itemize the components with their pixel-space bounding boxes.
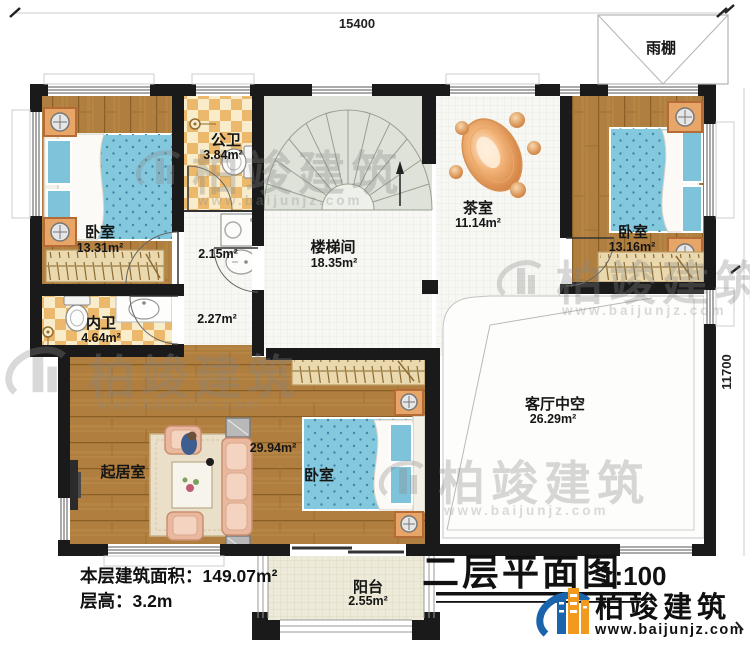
dimension-right: 11700	[719, 88, 744, 556]
tv	[70, 460, 78, 510]
watermark-url: www.baijunjz.com	[561, 303, 727, 318]
room-label: 起居室	[99, 463, 145, 481]
room-area: 4.64m²	[81, 331, 121, 345]
dimension-width: 15400	[339, 16, 375, 31]
nightstand	[395, 512, 423, 537]
balcony-sliding-door	[290, 544, 406, 556]
room-label: 茶室	[463, 199, 493, 217]
room-label: 公卫	[211, 132, 241, 149]
room-area: 29.94m²	[250, 441, 297, 455]
balcony	[258, 556, 434, 632]
room-area: 18.35m²	[311, 256, 358, 270]
bed-right	[610, 128, 702, 232]
watermark-url: www.baijunjz.com	[443, 503, 609, 518]
nightstand	[668, 102, 702, 132]
room-area: 13.31m²	[77, 241, 124, 255]
nightstand	[44, 218, 76, 246]
dimension-height: 11700	[719, 354, 734, 389]
room-area: 2.55m²	[348, 594, 388, 608]
area-label-laundry: 2.15m²	[198, 247, 238, 261]
area-label-hall: 2.27m²	[197, 312, 237, 326]
wardrobe	[292, 358, 425, 385]
plan-title: 二层平面图	[422, 552, 622, 593]
plan-scale: 1:100	[600, 561, 667, 591]
room-label: 卧室	[85, 223, 115, 241]
floorplan-page: 雨棚 15400 11700 柏竣建筑 www.baijunjz.com 柏竣建…	[0, 0, 750, 648]
room-area: 3.84m²	[203, 148, 243, 162]
brand-logo: 柏竣建筑 www.baijunjz.com	[540, 588, 744, 638]
room-area: 26.29m²	[530, 412, 577, 426]
canopy-label: 雨棚	[646, 39, 676, 57]
watermark-url: www.baijunjz.com	[95, 397, 261, 412]
room-area: 13.16m²	[609, 240, 656, 254]
room-label: 内卫	[86, 314, 116, 332]
room-label: 卧室	[618, 223, 648, 241]
nightstand	[395, 390, 423, 415]
floor-height-text: 层高：3.2m	[80, 591, 172, 611]
floor-area-text: 本层建筑面积：149.07m²	[80, 566, 278, 586]
info-block: 本层建筑面积：149.07m² 层高：3.2m	[80, 566, 278, 611]
brand-name: 柏竣建筑	[595, 590, 731, 624]
nightstand	[44, 108, 76, 136]
watermark-url: www.baijunjz.com	[197, 193, 363, 208]
brand-url: www.baijunjz.com	[594, 622, 744, 638]
room-area: 11.14m²	[455, 216, 501, 230]
room-label: 客厅中空	[524, 395, 585, 413]
toilet	[66, 305, 88, 331]
floorplan-drawing: 雨棚 15400 11700 柏竣建筑 www.baijunjz.com 柏竣建…	[0, 0, 750, 648]
room-label: 楼梯间	[310, 238, 355, 256]
room-label: 卧室	[304, 466, 334, 484]
